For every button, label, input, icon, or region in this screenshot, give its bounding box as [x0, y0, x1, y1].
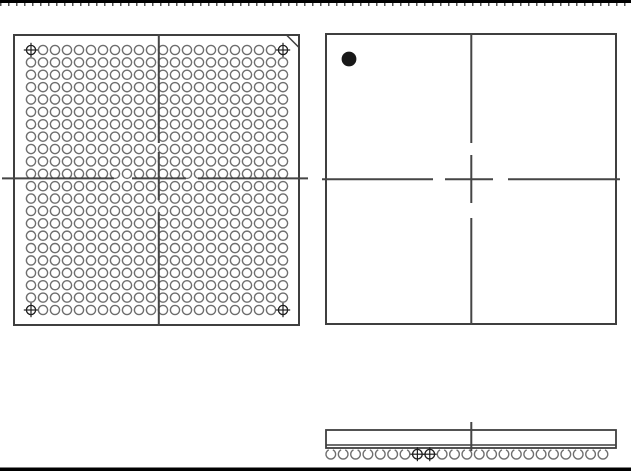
ball [230, 305, 239, 314]
ball [278, 83, 287, 92]
ball [98, 281, 107, 290]
ball [98, 157, 107, 166]
ball [278, 120, 287, 129]
ball [86, 58, 95, 67]
ball [230, 120, 239, 129]
ball [110, 219, 119, 228]
ball [278, 95, 287, 104]
ball [170, 194, 179, 203]
ball [122, 120, 131, 129]
ball [182, 305, 191, 314]
ball [206, 120, 215, 129]
ball [26, 182, 35, 191]
ball [146, 219, 155, 228]
ball [278, 132, 287, 141]
ball [242, 58, 251, 67]
ball [74, 45, 83, 54]
ball [278, 194, 287, 203]
side-ball [474, 450, 484, 459]
ball [170, 256, 179, 265]
ball [170, 219, 179, 228]
ball [218, 268, 227, 277]
ball [98, 169, 107, 178]
ball [62, 243, 71, 252]
ball [62, 256, 71, 265]
ball [254, 169, 263, 178]
ball [38, 281, 47, 290]
ball [170, 45, 179, 54]
ball [254, 45, 263, 54]
ball [98, 107, 107, 116]
ball [206, 256, 215, 265]
ball [206, 58, 215, 67]
ball [134, 169, 143, 178]
ball [38, 169, 47, 178]
ball [182, 231, 191, 240]
ball [266, 219, 275, 228]
ball [206, 45, 215, 54]
ball [134, 144, 143, 153]
ball [74, 293, 83, 302]
ball [98, 194, 107, 203]
ball [86, 45, 95, 54]
ball [38, 305, 47, 314]
ball [110, 268, 119, 277]
ball [38, 268, 47, 277]
ball [110, 293, 119, 302]
ball [146, 169, 155, 178]
ball [38, 58, 47, 67]
ball [134, 83, 143, 92]
ball [50, 45, 59, 54]
ball [206, 83, 215, 92]
ball [266, 305, 275, 314]
ball [242, 70, 251, 79]
ball [182, 83, 191, 92]
ball [170, 281, 179, 290]
ball [194, 219, 203, 228]
side-ball [499, 450, 509, 459]
ball [122, 70, 131, 79]
ball [50, 107, 59, 116]
ball [122, 219, 131, 228]
ball [38, 95, 47, 104]
ball [146, 95, 155, 104]
ball [38, 206, 47, 215]
ball [122, 169, 131, 178]
ball [98, 83, 107, 92]
ball [194, 305, 203, 314]
ball [170, 169, 179, 178]
ball [62, 107, 71, 116]
ball [230, 132, 239, 141]
ball [134, 58, 143, 67]
ball [26, 58, 35, 67]
side-ball [326, 450, 336, 459]
ball [26, 157, 35, 166]
ball [110, 256, 119, 265]
ball [26, 206, 35, 215]
ball [98, 231, 107, 240]
ball [110, 107, 119, 116]
top-rule [0, 0, 631, 5]
ball [230, 268, 239, 277]
ball [134, 219, 143, 228]
ball [230, 169, 239, 178]
ball [218, 281, 227, 290]
ball [242, 305, 251, 314]
ball [122, 268, 131, 277]
ball [38, 107, 47, 116]
ball [266, 120, 275, 129]
ball [62, 219, 71, 228]
ball [182, 169, 191, 178]
ball [110, 132, 119, 141]
ball [230, 45, 239, 54]
ball [62, 157, 71, 166]
ball [74, 256, 83, 265]
ball [50, 58, 59, 67]
ball [194, 157, 203, 166]
ball [62, 95, 71, 104]
ball [242, 83, 251, 92]
ball [74, 58, 83, 67]
ball [254, 144, 263, 153]
ball [122, 182, 131, 191]
side-ball [512, 450, 522, 459]
chamfer-corner-line [287, 35, 300, 48]
ball [110, 281, 119, 290]
ball [134, 305, 143, 314]
ball [38, 157, 47, 166]
side-ball [400, 450, 410, 459]
ball [218, 305, 227, 314]
ball [98, 58, 107, 67]
ball [278, 169, 287, 178]
fiducial-marker [276, 43, 290, 57]
ball [98, 268, 107, 277]
ball [122, 144, 131, 153]
ball [206, 95, 215, 104]
ball [26, 219, 35, 228]
ball [218, 95, 227, 104]
ball [50, 231, 59, 240]
ball [134, 256, 143, 265]
ball [194, 169, 203, 178]
ball [182, 45, 191, 54]
ball [206, 206, 215, 215]
ball [26, 70, 35, 79]
ball [182, 182, 191, 191]
ball [146, 243, 155, 252]
side-ball [450, 450, 460, 459]
top-rule-bar [0, 0, 631, 3]
ball [230, 281, 239, 290]
ball [38, 144, 47, 153]
side-ball [561, 450, 571, 459]
ball [134, 182, 143, 191]
ball [62, 169, 71, 178]
ball [242, 132, 251, 141]
ball [146, 268, 155, 277]
ball [50, 293, 59, 302]
ball [134, 281, 143, 290]
ball [230, 182, 239, 191]
ball [242, 206, 251, 215]
ball [170, 120, 179, 129]
ball [194, 293, 203, 302]
side-ball [351, 450, 361, 459]
ball [50, 144, 59, 153]
ball [62, 58, 71, 67]
ball [242, 107, 251, 116]
ball [242, 194, 251, 203]
ball [122, 194, 131, 203]
ball [110, 83, 119, 92]
ball [74, 219, 83, 228]
ball [146, 231, 155, 240]
ball [110, 194, 119, 203]
ball [266, 95, 275, 104]
ball [218, 45, 227, 54]
ball [254, 305, 263, 314]
ball [266, 70, 275, 79]
ball [230, 231, 239, 240]
ball [98, 95, 107, 104]
ball [62, 70, 71, 79]
ball [254, 231, 263, 240]
ball [38, 219, 47, 228]
side-ball [363, 450, 373, 459]
side-ball [524, 450, 534, 459]
ball [278, 293, 287, 302]
ball [110, 70, 119, 79]
ball [50, 157, 59, 166]
ball [74, 107, 83, 116]
ball [242, 182, 251, 191]
ball [278, 256, 287, 265]
ball [278, 268, 287, 277]
ball [182, 194, 191, 203]
ball [74, 206, 83, 215]
ball [50, 256, 59, 265]
ball [86, 169, 95, 178]
ball [230, 144, 239, 153]
ball [122, 281, 131, 290]
ball [62, 231, 71, 240]
ball [170, 95, 179, 104]
ball [218, 120, 227, 129]
ball [122, 206, 131, 215]
ball [182, 243, 191, 252]
ball [122, 231, 131, 240]
ball [26, 231, 35, 240]
ball [38, 256, 47, 265]
ball [146, 45, 155, 54]
ball [170, 157, 179, 166]
ball [50, 169, 59, 178]
ball [38, 231, 47, 240]
ball [278, 231, 287, 240]
ball [266, 243, 275, 252]
fiducial-marker [410, 447, 424, 461]
ball [218, 157, 227, 166]
ball [278, 144, 287, 153]
ball [182, 132, 191, 141]
ball [146, 58, 155, 67]
ball [110, 206, 119, 215]
ball [50, 219, 59, 228]
fiducial-marker [276, 303, 290, 317]
ball [254, 268, 263, 277]
ball [74, 268, 83, 277]
ball [26, 107, 35, 116]
ball [266, 206, 275, 215]
ball [218, 144, 227, 153]
package-drawing-page [0, 0, 631, 475]
ball [134, 243, 143, 252]
ball [74, 243, 83, 252]
ball [110, 144, 119, 153]
ball [242, 144, 251, 153]
ball [86, 219, 95, 228]
ball [218, 243, 227, 252]
ball [74, 157, 83, 166]
ball [218, 132, 227, 141]
ball [38, 120, 47, 129]
ball [38, 194, 47, 203]
ball [266, 268, 275, 277]
ball [218, 194, 227, 203]
ball [194, 120, 203, 129]
ball [206, 268, 215, 277]
ball [62, 182, 71, 191]
ball [170, 305, 179, 314]
ball [86, 194, 95, 203]
ball [254, 281, 263, 290]
ball [194, 144, 203, 153]
ball [122, 243, 131, 252]
ball [110, 45, 119, 54]
ball [98, 45, 107, 54]
ball [50, 243, 59, 252]
ball [182, 58, 191, 67]
ball [278, 58, 287, 67]
ball [26, 169, 35, 178]
ball [38, 243, 47, 252]
ball [170, 268, 179, 277]
ball [74, 95, 83, 104]
ball [134, 231, 143, 240]
ball [74, 231, 83, 240]
ball [254, 70, 263, 79]
ball [206, 144, 215, 153]
ball [182, 219, 191, 228]
ball [50, 132, 59, 141]
ball [98, 293, 107, 302]
ball [254, 256, 263, 265]
ball [206, 281, 215, 290]
ball [194, 132, 203, 141]
ball [74, 169, 83, 178]
ball [74, 305, 83, 314]
ball [242, 256, 251, 265]
ball [194, 281, 203, 290]
ball [230, 219, 239, 228]
ball [230, 293, 239, 302]
ball [110, 95, 119, 104]
ball [62, 305, 71, 314]
ball [206, 293, 215, 302]
pin1-dot [342, 52, 357, 67]
ball [278, 182, 287, 191]
ball [26, 194, 35, 203]
bga-package-drawing [0, 0, 631, 475]
ball [254, 157, 263, 166]
ball [254, 206, 263, 215]
ball [194, 256, 203, 265]
ball [218, 182, 227, 191]
ball [170, 293, 179, 302]
ball [242, 281, 251, 290]
ball [86, 256, 95, 265]
ball [26, 144, 35, 153]
ball [218, 219, 227, 228]
ball [86, 157, 95, 166]
side-ball [388, 450, 398, 459]
ball [182, 256, 191, 265]
ball [206, 305, 215, 314]
ball [218, 256, 227, 265]
ball [62, 83, 71, 92]
ball [38, 83, 47, 92]
ball [26, 132, 35, 141]
ball [134, 206, 143, 215]
ball [170, 83, 179, 92]
ball [26, 120, 35, 129]
ball [50, 182, 59, 191]
ball [254, 95, 263, 104]
ball [26, 281, 35, 290]
ball [122, 157, 131, 166]
side-ball [338, 450, 348, 459]
ball [170, 144, 179, 153]
ball [110, 305, 119, 314]
ball [170, 182, 179, 191]
ball [194, 83, 203, 92]
ball [242, 268, 251, 277]
ball [218, 58, 227, 67]
ball [230, 194, 239, 203]
ball [110, 169, 119, 178]
ball [194, 194, 203, 203]
ball [62, 281, 71, 290]
ball [26, 243, 35, 252]
ball [74, 132, 83, 141]
ball [110, 182, 119, 191]
ball [182, 120, 191, 129]
ball [86, 281, 95, 290]
ball-grid [24, 43, 290, 317]
ball [218, 83, 227, 92]
ball [134, 194, 143, 203]
ball [110, 157, 119, 166]
ball [62, 144, 71, 153]
ball [98, 120, 107, 129]
ball [254, 132, 263, 141]
ball [50, 194, 59, 203]
ball [266, 157, 275, 166]
